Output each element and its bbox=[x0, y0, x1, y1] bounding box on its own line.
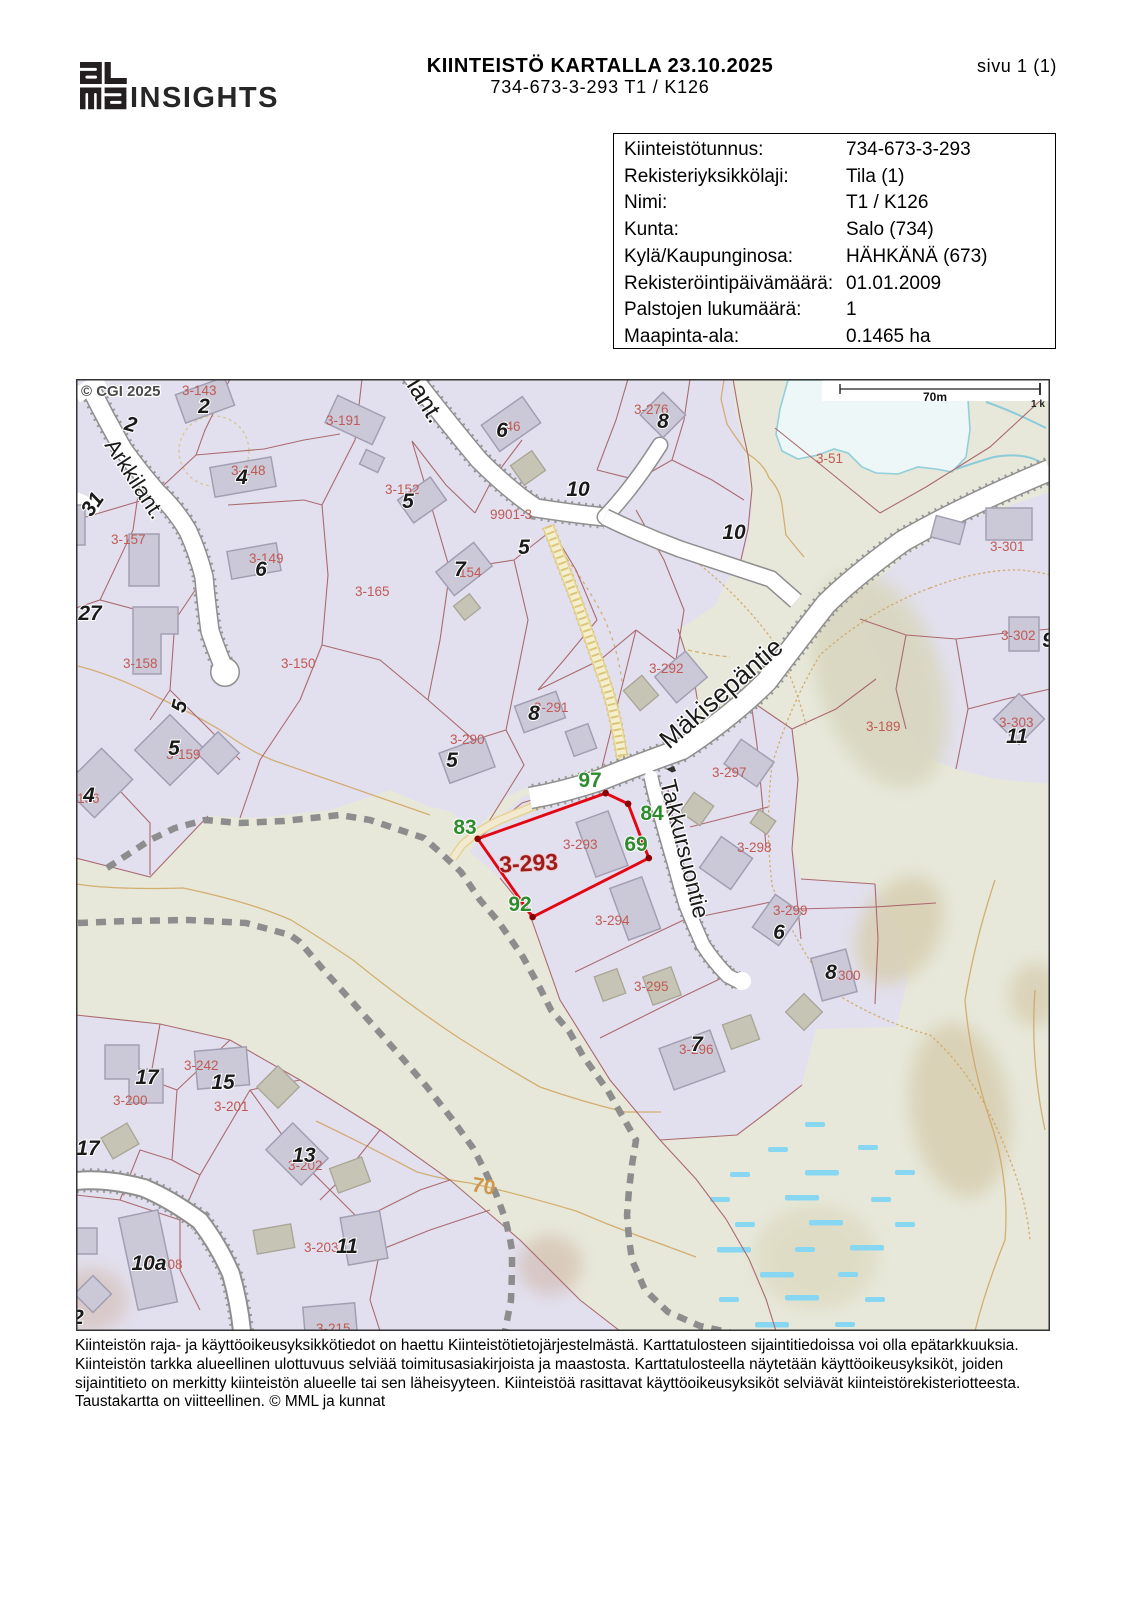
svg-text:11: 11 bbox=[1006, 725, 1028, 748]
svg-text:83: 83 bbox=[453, 816, 476, 839]
svg-text:3-191: 3-191 bbox=[326, 413, 361, 428]
svg-text:6: 6 bbox=[496, 419, 508, 442]
svg-text:3-302: 3-302 bbox=[1001, 628, 1036, 643]
svg-text:17: 17 bbox=[76, 1137, 101, 1160]
svg-text:3-157: 3-157 bbox=[111, 532, 146, 547]
svg-text:70: 70 bbox=[470, 1173, 497, 1200]
svg-text:6: 6 bbox=[773, 921, 785, 944]
svg-text:8: 8 bbox=[657, 410, 669, 433]
svg-text:10: 10 bbox=[566, 478, 590, 501]
svg-text:2: 2 bbox=[197, 395, 210, 418]
svg-text:5: 5 bbox=[518, 536, 530, 559]
svg-text:5: 5 bbox=[402, 490, 414, 513]
svg-text:3-298: 3-298 bbox=[737, 840, 772, 855]
svg-text:3-293: 3-293 bbox=[499, 848, 559, 877]
svg-text:3-292: 3-292 bbox=[649, 661, 684, 676]
svg-text:11: 11 bbox=[336, 1235, 358, 1258]
svg-text:3-165: 3-165 bbox=[355, 584, 390, 599]
svg-text:3-301: 3-301 bbox=[990, 539, 1025, 554]
svg-text:3-290: 3-290 bbox=[450, 732, 485, 747]
svg-text:10a: 10a bbox=[131, 1252, 166, 1275]
svg-text:3-158: 3-158 bbox=[123, 656, 158, 671]
svg-text:© CGI 2025: © CGI 2025 bbox=[81, 383, 160, 400]
svg-text:1 k: 1 k bbox=[1031, 399, 1045, 410]
svg-text:300: 300 bbox=[838, 968, 861, 983]
svg-text:9901-3: 9901-3 bbox=[490, 507, 532, 522]
svg-text:3-189: 3-189 bbox=[866, 719, 901, 734]
svg-text:6: 6 bbox=[255, 558, 267, 581]
svg-text:3-51: 3-51 bbox=[816, 451, 843, 466]
svg-text:70m: 70m bbox=[923, 390, 947, 404]
svg-text:97: 97 bbox=[578, 769, 601, 792]
svg-text:3-293: 3-293 bbox=[563, 837, 598, 852]
svg-text:7: 7 bbox=[454, 558, 467, 581]
svg-text:3-299: 3-299 bbox=[773, 903, 808, 918]
svg-text:3-150: 3-150 bbox=[281, 656, 316, 671]
svg-text:10: 10 bbox=[722, 521, 746, 544]
svg-text:8: 8 bbox=[825, 961, 837, 984]
svg-text:5: 5 bbox=[446, 749, 458, 772]
svg-text:15: 15 bbox=[211, 1071, 235, 1094]
svg-text:27: 27 bbox=[77, 602, 103, 625]
svg-text:3-200: 3-200 bbox=[113, 1093, 148, 1108]
svg-text:3-295: 3-295 bbox=[634, 979, 669, 994]
svg-text:17: 17 bbox=[135, 1066, 160, 1089]
svg-text:8: 8 bbox=[528, 702, 540, 725]
svg-text:4: 4 bbox=[82, 784, 95, 807]
svg-text:5: 5 bbox=[168, 737, 180, 760]
svg-text:4: 4 bbox=[235, 466, 248, 489]
svg-text:3-294: 3-294 bbox=[595, 913, 630, 928]
svg-text:3-297: 3-297 bbox=[712, 765, 747, 780]
svg-text:7: 7 bbox=[691, 1033, 704, 1056]
svg-text:92: 92 bbox=[508, 893, 531, 916]
svg-text:13: 13 bbox=[292, 1144, 316, 1167]
svg-text:3-201: 3-201 bbox=[214, 1099, 249, 1114]
svg-text:3-203: 3-203 bbox=[304, 1240, 339, 1255]
svg-text:84: 84 bbox=[640, 802, 664, 825]
svg-text:69: 69 bbox=[624, 833, 647, 856]
